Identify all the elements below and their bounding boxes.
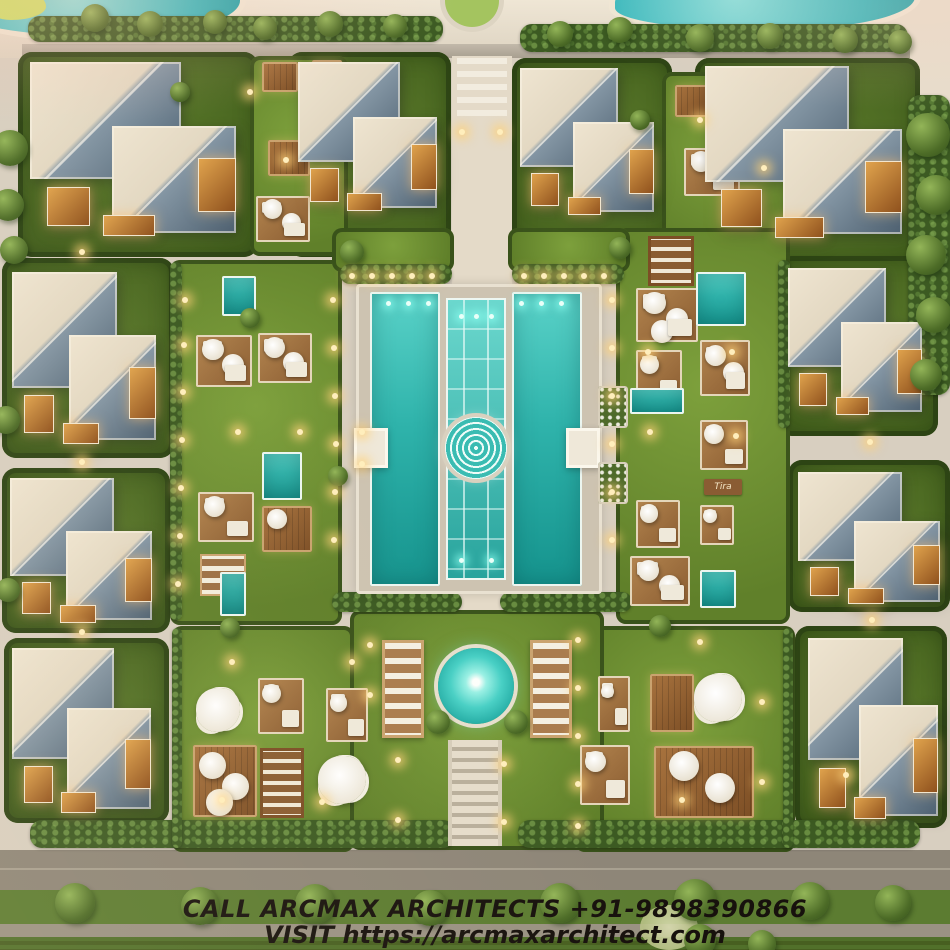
garden-light: [79, 249, 85, 255]
umbrella: [638, 560, 659, 581]
tree: [910, 359, 942, 391]
garden-light: [359, 461, 365, 467]
umbrella: [640, 504, 658, 522]
hedge-row: [340, 264, 452, 284]
villa-top-midleft: [298, 62, 443, 214]
tira-sign: Tira: [704, 479, 742, 495]
tree: [203, 10, 227, 34]
garden-light: [332, 489, 338, 495]
umbrella: [222, 354, 244, 376]
tree: [170, 82, 190, 102]
lit-interior: [60, 605, 96, 623]
deck-shelf: [260, 748, 304, 818]
tree: [607, 17, 633, 43]
garden-light: [429, 273, 435, 279]
lit-interior: [568, 197, 602, 215]
umbrella: [705, 345, 726, 366]
underwater-light: [519, 301, 524, 306]
contact-phone-text: CALL ARCMAX ARCHITECTS +91-9898390866: [150, 896, 840, 922]
hedge-row: [172, 628, 182, 848]
garden-light: [561, 273, 567, 279]
umbrella: [659, 575, 680, 596]
garden-light: [359, 429, 365, 435]
garden-light: [367, 642, 373, 648]
garden-light: [219, 797, 225, 803]
garden-light: [79, 629, 85, 635]
hedge-row: [783, 628, 793, 848]
lit-interior: [836, 397, 870, 415]
garden-light: [647, 429, 653, 435]
tree: [906, 235, 946, 275]
umbrella: [705, 773, 735, 803]
lit-interior: [799, 373, 827, 406]
lit-interior: [629, 149, 654, 194]
garden-light: [609, 441, 615, 447]
deck-wood: [650, 674, 694, 732]
deck-bigwood: [193, 745, 257, 817]
garden-light: [575, 733, 581, 739]
lit-interior: [775, 217, 824, 238]
garden-light: [247, 89, 253, 95]
umbrella: [669, 751, 699, 781]
garden-light: [761, 165, 767, 171]
garden-light: [729, 349, 735, 355]
lit-interior: [24, 395, 54, 434]
tree: [686, 24, 714, 52]
garden-light: [297, 429, 303, 435]
garden-light: [601, 273, 607, 279]
umbrella: [704, 424, 724, 444]
underwater-light: [406, 301, 411, 306]
underwater-light: [386, 301, 391, 306]
lit-interior: [810, 567, 840, 597]
deck-bigwood: [654, 746, 754, 818]
garden-light: [332, 393, 338, 399]
tree: [317, 11, 343, 37]
umbrella: [723, 362, 744, 383]
underwater-light: [489, 558, 494, 563]
hedge-row: [332, 592, 462, 612]
villa-right-lower: [808, 638, 943, 823]
lit-interior: [721, 189, 762, 228]
garden-light: [349, 659, 355, 665]
garden-light: [575, 685, 581, 691]
lit-interior: [848, 588, 884, 604]
underwater-light: [474, 314, 479, 319]
plunge-pool: [220, 572, 246, 616]
lit-interior: [129, 367, 156, 420]
garden-light: [867, 439, 873, 445]
plunge-pool: [630, 388, 684, 414]
garden-light: [79, 459, 85, 465]
garden-light: [182, 297, 188, 303]
garden-light: [609, 345, 615, 351]
hedge-row: [30, 820, 455, 848]
deck-white: [196, 335, 252, 387]
lane-line: [0, 868, 950, 870]
tree: [757, 23, 783, 49]
sunbed-deck-right: [530, 640, 572, 738]
lit-interior: [103, 215, 155, 236]
grand-stairs: [448, 740, 502, 846]
garden-light: [333, 441, 339, 447]
lit-interior: [347, 193, 382, 211]
umbrella: [651, 320, 674, 343]
tira-sign-label: Tira: [714, 482, 731, 492]
garden-light: [843, 772, 849, 778]
underwater-light: [559, 301, 564, 306]
tree: [383, 14, 407, 38]
garden-light: [389, 273, 395, 279]
umbrella: [282, 213, 301, 232]
crosswalk: [457, 58, 507, 116]
garden-light: [759, 699, 765, 705]
garden-light: [395, 757, 401, 763]
villa-right-upper: [788, 268, 928, 418]
villa-left-lower: [12, 648, 157, 816]
tree: [240, 308, 260, 328]
umbrella: [202, 339, 224, 361]
garden-light: [369, 273, 375, 279]
garden-light: [459, 129, 465, 135]
tree: [609, 237, 631, 259]
plunge-pool: [696, 272, 746, 326]
courtyard-lawn: [575, 626, 795, 852]
tree: [630, 110, 650, 130]
garden-light: [331, 537, 337, 543]
garden-light: [331, 345, 337, 351]
deck-white: [636, 500, 680, 548]
tree: [220, 618, 240, 638]
umbrella: [666, 308, 689, 331]
pool-platform-right: [566, 428, 600, 468]
garden-light: [581, 273, 587, 279]
garden-light: [697, 639, 703, 645]
underwater-light: [489, 314, 494, 319]
deck-white: [198, 492, 254, 542]
villa-right-mid: [798, 472, 946, 607]
garden-light: [697, 117, 703, 123]
deck-shelf: [648, 236, 694, 286]
umbrella: [601, 685, 614, 698]
deck-white: [700, 420, 748, 470]
garden-light: [521, 273, 527, 279]
villa-top-left: [30, 62, 245, 240]
hedge-row: [500, 592, 632, 612]
garden-light: [869, 617, 875, 623]
garden-light: [609, 297, 615, 303]
lit-interior: [125, 739, 151, 789]
deck-white: [630, 556, 690, 606]
garden-light: [609, 489, 615, 495]
umbrella: [283, 352, 304, 373]
tree: [916, 297, 950, 333]
site-plan: [0, 0, 950, 950]
garden-light: [645, 349, 651, 355]
umbrella: [263, 199, 282, 218]
garden-light: [759, 779, 765, 785]
lit-interior: [125, 558, 152, 602]
lit-interior: [913, 738, 937, 794]
garden-light: [235, 429, 241, 435]
umbrella: [643, 292, 666, 315]
villa-left-mid: [10, 478, 158, 626]
lit-interior: [63, 423, 99, 444]
lit-interior: [865, 161, 902, 214]
umbrella: [199, 752, 226, 779]
lit-interior: [198, 158, 237, 211]
umbrella: [264, 337, 285, 358]
garden-light: [609, 393, 615, 399]
underwater-light: [539, 301, 544, 306]
garden-light: [367, 692, 373, 698]
lit-interior: [24, 766, 53, 803]
garden-light: [575, 781, 581, 787]
tree: [55, 883, 95, 923]
plunge-pool: [700, 570, 736, 608]
deck-wood: [262, 62, 298, 92]
tree: [916, 175, 950, 215]
sunbed-deck-left: [382, 640, 424, 738]
tree: [328, 466, 348, 486]
contact-overlay: CALL ARCMAX ARCHITECTS +91-9898390866 VI…: [150, 896, 840, 948]
underwater-light: [459, 314, 464, 319]
umbrella: [267, 509, 286, 528]
aerial-render: Tira CALL ARCMAX ARCHITECTS +91-98983908…: [0, 0, 950, 950]
lit-interior: [854, 797, 886, 819]
tree: [426, 710, 450, 734]
deck-white: [258, 678, 304, 734]
garden-light: [575, 637, 581, 643]
garden-light: [501, 761, 507, 767]
tree: [888, 30, 912, 54]
deck-white: [598, 676, 630, 732]
contact-website-text: VISIT https://arcmaxarchitect.com: [150, 922, 840, 948]
garden-light: [177, 533, 183, 539]
tree: [0, 236, 28, 264]
umbrella: [703, 509, 717, 523]
tree: [137, 11, 163, 37]
garden-light: [733, 433, 739, 439]
underwater-light: [459, 558, 464, 563]
tree: [906, 113, 950, 157]
garden-light: [330, 297, 336, 303]
villa-top-right: [705, 66, 910, 241]
tree: [649, 615, 671, 637]
deck-wood: [262, 506, 312, 552]
lit-interior: [310, 168, 339, 201]
spiral-fountain: [445, 417, 507, 479]
deck-white: [326, 688, 368, 742]
lit-interior: [47, 187, 90, 226]
lit-interior: [411, 144, 437, 190]
garden-light: [609, 537, 615, 543]
lit-interior: [913, 545, 940, 586]
tree: [547, 21, 573, 47]
garden-light: [179, 437, 185, 443]
garden-light: [319, 799, 325, 805]
umbrella: [262, 684, 281, 703]
lit-interior: [22, 582, 52, 615]
tree: [81, 4, 109, 32]
tree: [340, 240, 364, 264]
deck-white: [700, 505, 734, 545]
garden-light: [541, 273, 547, 279]
villa-top-midright: [520, 68, 660, 218]
garden-light: [575, 823, 581, 829]
garden-light: [395, 817, 401, 823]
garden-light: [283, 157, 289, 163]
garden-light: [175, 581, 181, 587]
garden-light: [180, 389, 186, 395]
garden-light: [679, 797, 685, 803]
deck-white: [636, 288, 698, 342]
deck-white: [258, 333, 312, 383]
umbrella: [204, 496, 225, 517]
lit-interior: [819, 768, 846, 809]
underwater-light: [426, 301, 431, 306]
deck-white: [700, 340, 750, 396]
plunge-pool: [262, 452, 302, 500]
villa-left-upper: [12, 272, 162, 447]
garden-light: [349, 273, 355, 279]
lit-interior: [531, 173, 559, 206]
round-pool: [438, 648, 514, 724]
umbrella: [640, 355, 659, 374]
garden-light: [409, 273, 415, 279]
tree: [253, 16, 277, 40]
lit-interior: [61, 792, 96, 812]
garden-light: [178, 485, 184, 491]
hedge-row: [512, 264, 624, 284]
deck-white: [580, 745, 630, 805]
tree: [832, 27, 858, 53]
garden-light: [501, 819, 507, 825]
tree: [875, 885, 911, 921]
garden-light: [181, 342, 187, 348]
flower-planter: [598, 462, 628, 504]
garden-light: [497, 129, 503, 135]
garden-light: [229, 659, 235, 665]
umbrella: [330, 694, 348, 712]
tree: [504, 710, 528, 734]
umbrella: [585, 751, 606, 772]
